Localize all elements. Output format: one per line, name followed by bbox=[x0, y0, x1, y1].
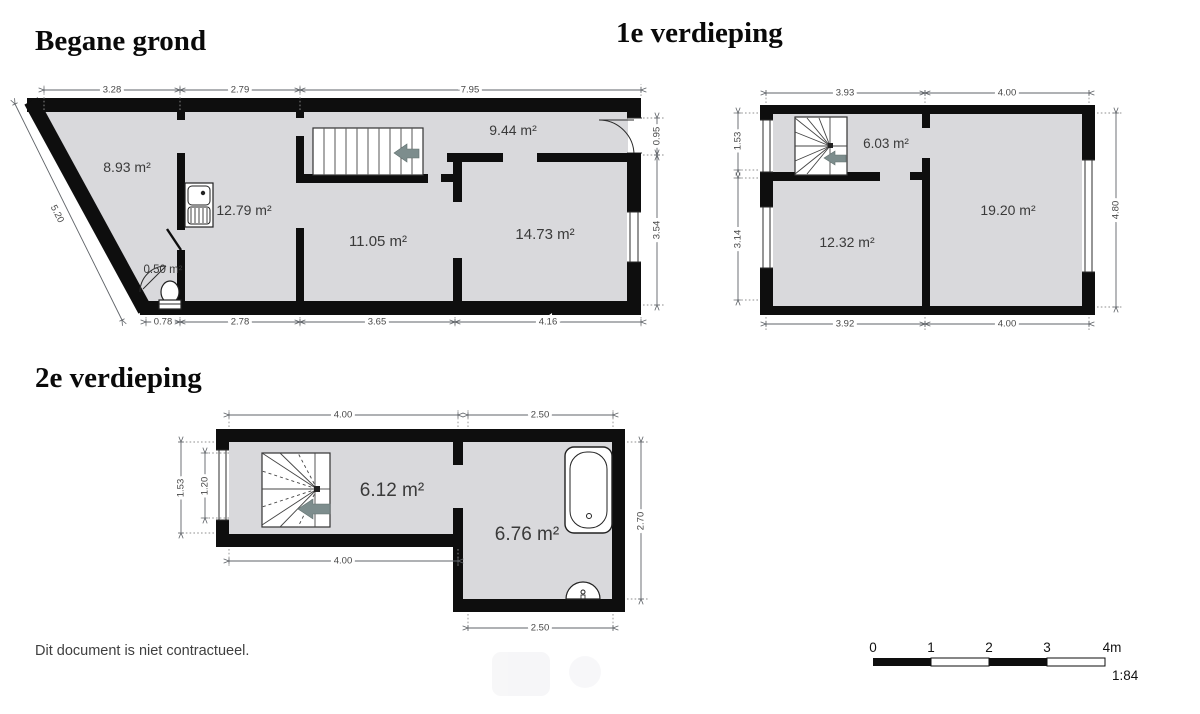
scale-ratio: 1:84 bbox=[1112, 668, 1139, 683]
dim-label: 2.50 bbox=[531, 623, 550, 634]
room-label: 19.20 m² bbox=[980, 202, 1036, 218]
dim-label: 3.92 bbox=[836, 319, 855, 330]
first-left-window-bottom bbox=[760, 207, 773, 268]
stairs-ground bbox=[313, 128, 423, 175]
disclaimer-text: Dit document is niet contractueel. bbox=[35, 643, 249, 659]
room-label: 6.76 m² bbox=[495, 524, 559, 545]
scale-tick-label: 0 bbox=[869, 640, 877, 655]
room-label: 6.03 m² bbox=[863, 136, 909, 151]
dim-label: 0.78 bbox=[154, 317, 173, 328]
dim-label: 4.00 bbox=[334, 410, 353, 421]
room-label: 12.32 m² bbox=[819, 234, 875, 250]
winder-stairs-second bbox=[262, 453, 330, 527]
dim-label: 1.53 bbox=[733, 132, 744, 151]
dim-label: 7.95 bbox=[461, 85, 480, 96]
dim-label: 5.20 bbox=[48, 203, 66, 224]
ground-floor-plan: 8.93 m² 12.79 m² 11.05 m² 9.44 m² 14.73 … bbox=[15, 84, 664, 328]
second-left-window bbox=[216, 450, 229, 520]
room-label: 0.50 m² bbox=[144, 264, 183, 276]
dim-label: 1.20 bbox=[200, 477, 211, 496]
room-label: 12.79 m² bbox=[216, 202, 272, 218]
title-ground-floor: Begane grond bbox=[35, 25, 206, 57]
title-second-floor: 2e verdieping bbox=[35, 362, 202, 394]
dim-label: 3.65 bbox=[368, 317, 387, 328]
dim-label: 3.28 bbox=[103, 85, 122, 96]
watermark bbox=[492, 652, 601, 696]
second-floor-area bbox=[216, 429, 462, 547]
second-floor-plan: 6.12 m² 6.76 m² 4.00 2.50 1.53 1.20 2.70… bbox=[176, 410, 648, 634]
dim-label: 4.80 bbox=[1111, 201, 1122, 220]
ground-right-window bbox=[627, 212, 641, 262]
first-floor-plan: 6.03 m² 12.32 m² 19.20 m² 3.93 4.00 3.92… bbox=[733, 88, 1122, 330]
dim-label: 4.00 bbox=[998, 319, 1017, 330]
dim-label: 2.50 bbox=[531, 410, 550, 421]
dim-label: 3.54 bbox=[652, 221, 663, 240]
room-label: 11.05 m² bbox=[349, 233, 407, 250]
title-first-floor: 1e verdieping bbox=[616, 17, 783, 49]
dim-label: 2.78 bbox=[231, 317, 250, 328]
first-right-window bbox=[1082, 160, 1095, 272]
kitchen-sink bbox=[185, 183, 213, 227]
dim-label: 4.00 bbox=[334, 556, 353, 567]
room-label: 14.73 m² bbox=[515, 226, 574, 243]
dim-label: 4.00 bbox=[998, 88, 1017, 99]
bathtub bbox=[565, 447, 612, 533]
dim-label: 2.70 bbox=[636, 512, 647, 531]
scale-tick-label: 1 bbox=[927, 640, 935, 655]
dim-label: 4.16 bbox=[539, 317, 558, 328]
dim-label: 3.93 bbox=[836, 88, 855, 99]
floorplan-document: Begane grond 1e verdieping 2e verdieping bbox=[0, 0, 1200, 714]
room-label: 8.93 m² bbox=[103, 159, 151, 175]
scale-bar: 0 1 2 3 4m 1:84 bbox=[869, 640, 1139, 683]
dim-label: 0.95 bbox=[652, 127, 663, 146]
scale-tick-label: 4m bbox=[1103, 640, 1122, 655]
winder-stairs-first bbox=[795, 117, 847, 175]
dim-label: 1.53 bbox=[176, 479, 187, 498]
room-label: 6.12 m² bbox=[360, 480, 424, 501]
scale-tick-label: 2 bbox=[985, 640, 993, 655]
first-left-window-top bbox=[760, 120, 773, 172]
room-label: 9.44 m² bbox=[489, 122, 537, 138]
dim-label: 2.79 bbox=[231, 85, 250, 96]
dim-label: 3.14 bbox=[733, 230, 744, 249]
scale-tick-label: 3 bbox=[1043, 640, 1051, 655]
